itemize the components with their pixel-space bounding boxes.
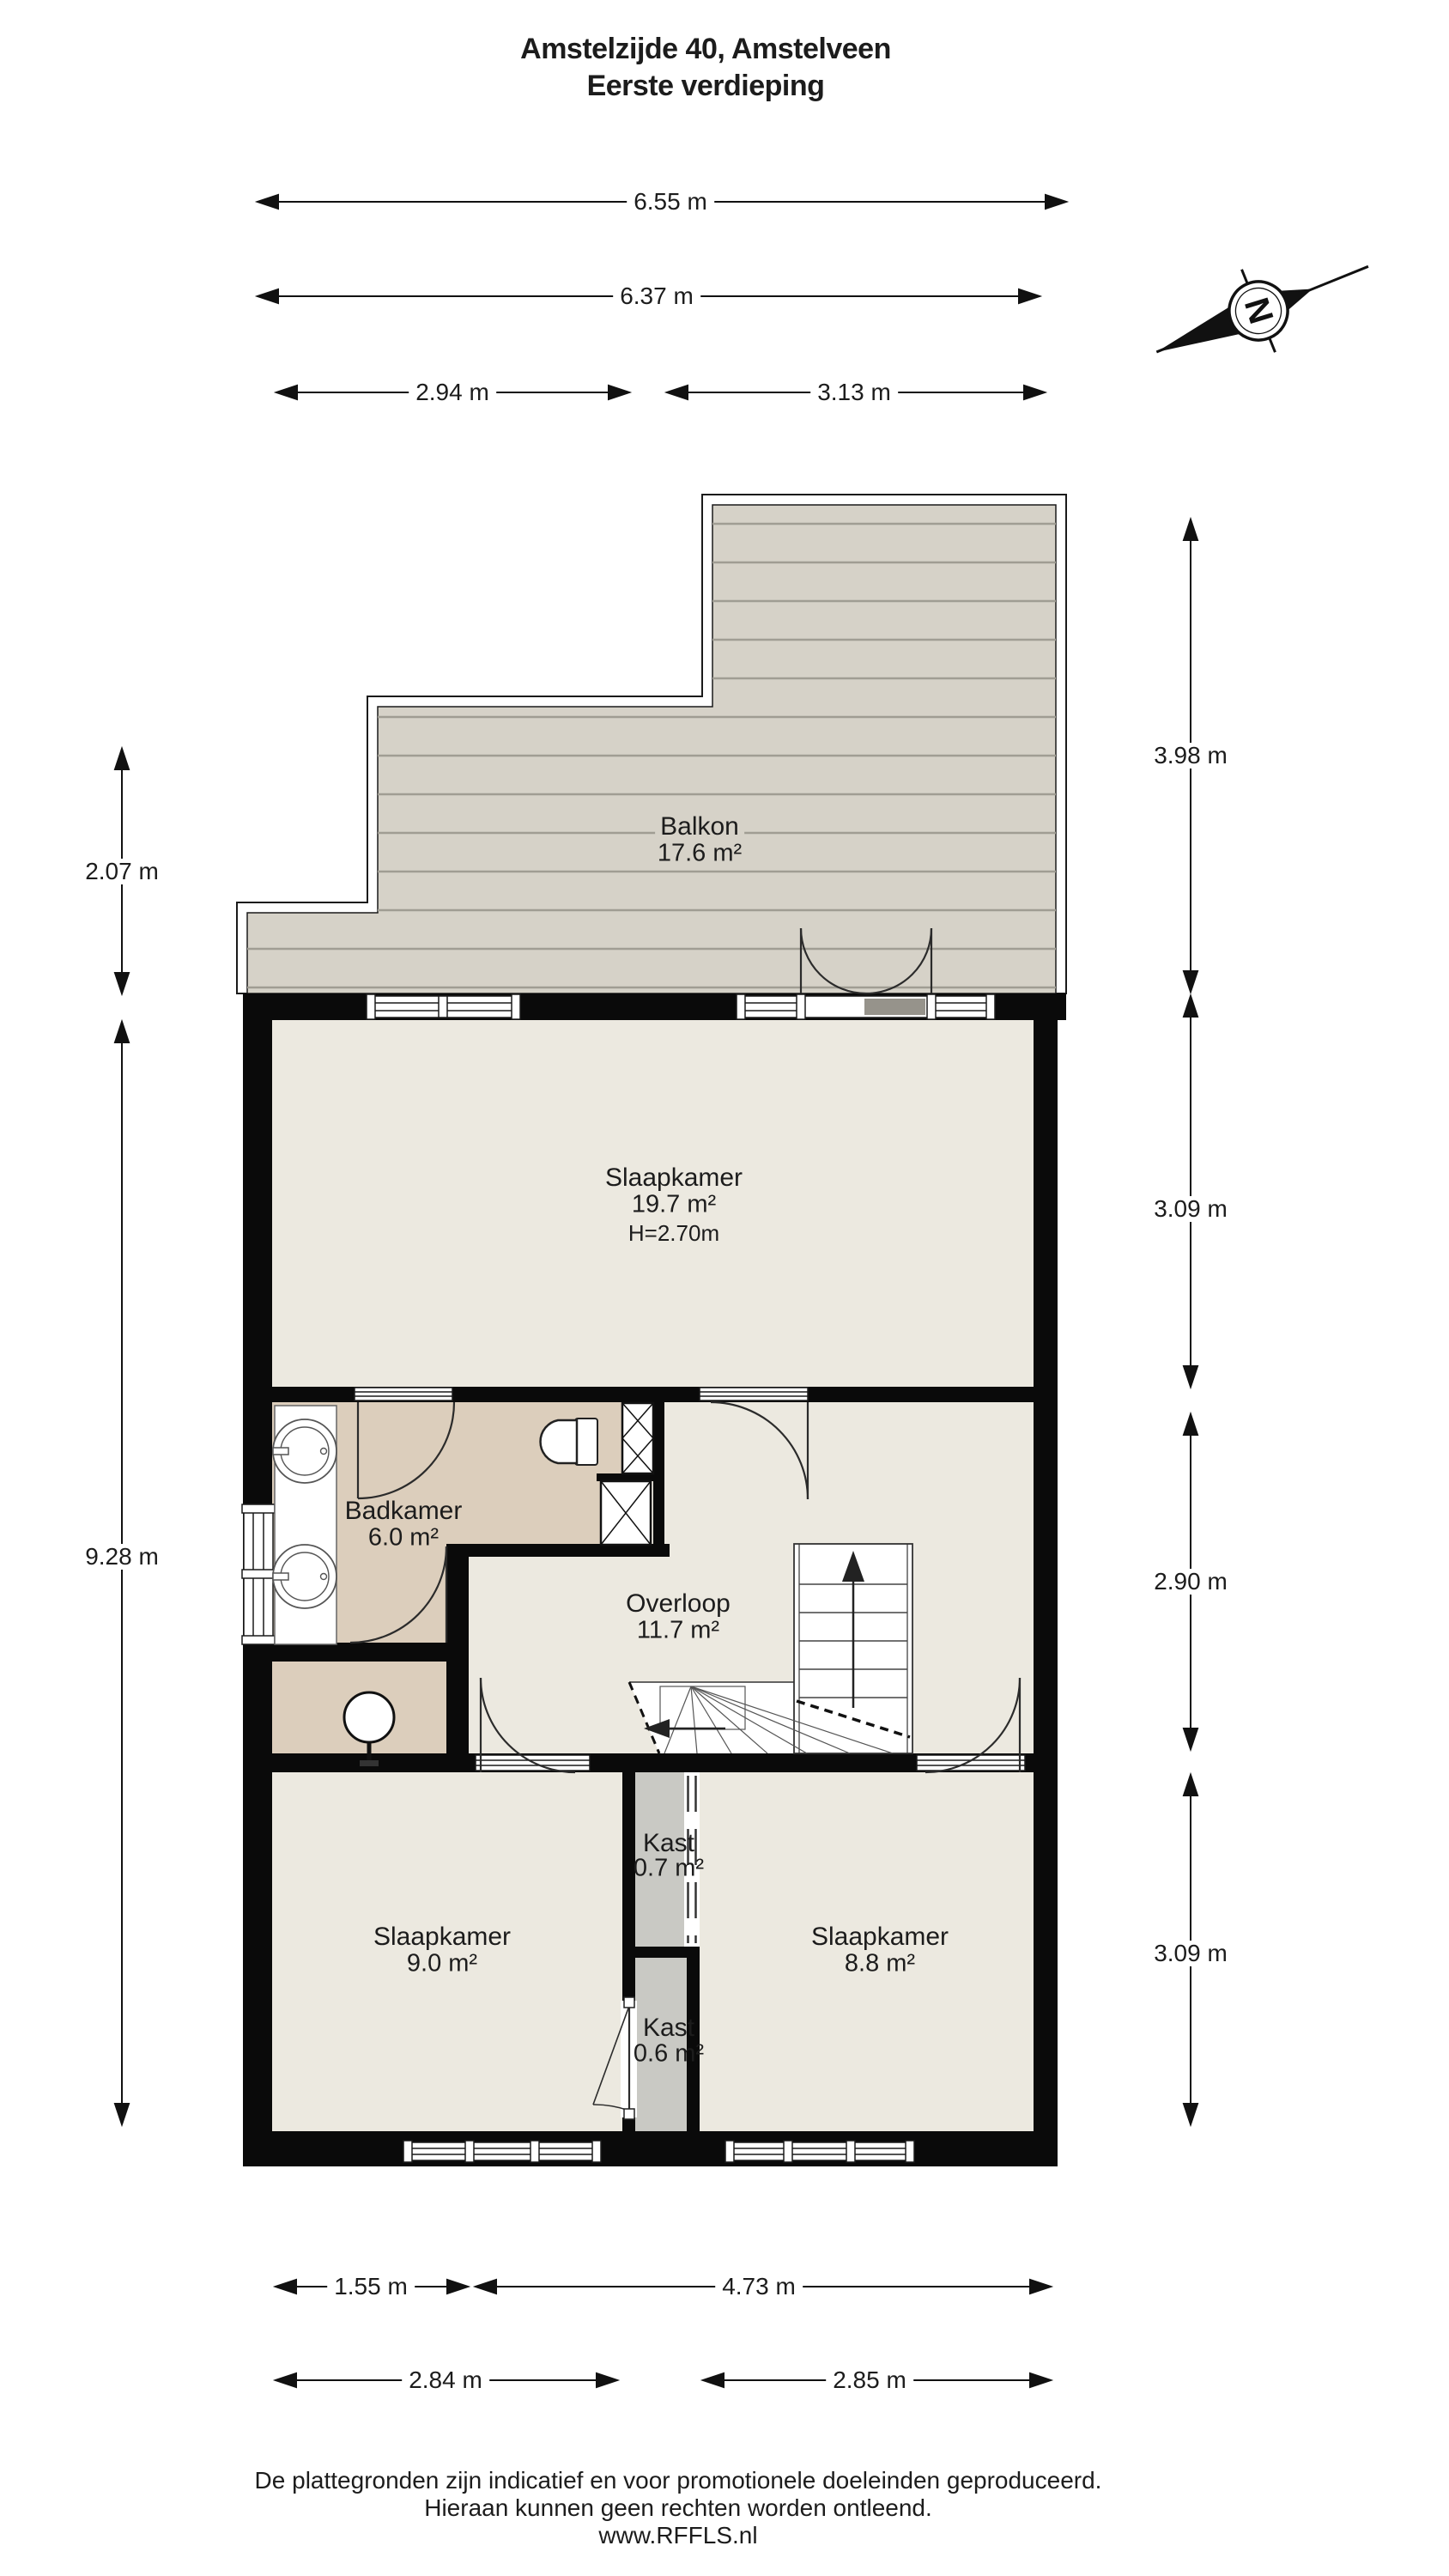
room-area-badkamer: 6.0 m² (368, 1526, 439, 1551)
dimension-label-bottom-3: 2.85 m (826, 2367, 913, 2393)
vanity-double-sink (273, 1406, 336, 1644)
page-subtitle: Eerste verdieping (587, 71, 825, 100)
dimension-label-right-0: 3.98 m (1147, 743, 1234, 769)
page-title: Amstelzijde 40, Amstelveen (520, 34, 891, 64)
room-label-balkon: Balkon (655, 814, 744, 840)
dimension-label-right-1: 3.09 m (1147, 1196, 1234, 1222)
compass-north-icon: N (1140, 225, 1385, 393)
footer-disclaimer-line1: De plattegronden zijn indicatief en voor… (255, 2469, 1102, 2493)
dimension-label-top-2: 2.94 m (409, 380, 496, 405)
room-area-kast-boven: 0.7 m² (634, 1856, 704, 1881)
dimension-label-left-0: 2.07 m (78, 859, 166, 884)
room-area-slaapkamer-links: 9.0 m² (407, 1952, 477, 1977)
dimension-label-bottom-2: 2.84 m (402, 2367, 489, 2393)
room-label-kast-onder: Kast (643, 2015, 694, 2041)
room-area-balkon: 17.6 m² (652, 841, 747, 866)
footer-disclaimer-line2: Hieraan kunnen geen rechten worden ontle… (424, 2496, 932, 2520)
dimension-label-right-2: 2.90 m (1147, 1569, 1234, 1595)
room-label-slaapkamer-links: Slaapkamer (373, 1924, 511, 1950)
room-label-slaapkamer-groot: Slaapkamer (605, 1165, 743, 1191)
dimension-label-top-3: 3.13 m (810, 380, 898, 405)
floorplan-drawing: N (0, 0, 1449, 2576)
room-area-slaapkamer-rechts: 8.8 m² (845, 1952, 915, 1977)
dimension-label-left-1: 9.28 m (78, 1544, 166, 1570)
dimension-label-bottom-0: 1.55 m (327, 2274, 415, 2300)
room-label-kast-boven: Kast (643, 1831, 694, 1856)
room-label-badkamer: Badkamer (345, 1498, 463, 1524)
dimension-label-bottom-1: 4.73 m (715, 2274, 803, 2300)
footer-website: www.RFFLS.nl (598, 2524, 757, 2548)
room-label-slaapkamer-rechts: Slaapkamer (811, 1924, 949, 1950)
room-area-kast-onder: 0.6 m² (634, 2042, 704, 2067)
toilet-icon (541, 1419, 597, 1465)
floorplan-page: N Amstelzijde 40, Amstelveen Eerste verd… (0, 0, 1449, 2576)
room-area-overloop: 11.7 m² (637, 1619, 719, 1643)
room-area-slaapkamer-groot: 19.7 m² (632, 1193, 716, 1218)
balcony-deck (237, 495, 1066, 993)
dimension-label-top-0: 6.55 m (627, 189, 714, 215)
room-height-slaapkamer-groot: H=2.70m (628, 1222, 719, 1244)
dimension-label-right-3: 3.09 m (1147, 1941, 1234, 1966)
dimension-label-top-1: 6.37 m (613, 283, 700, 309)
room-label-overloop: Overloop (626, 1591, 731, 1617)
